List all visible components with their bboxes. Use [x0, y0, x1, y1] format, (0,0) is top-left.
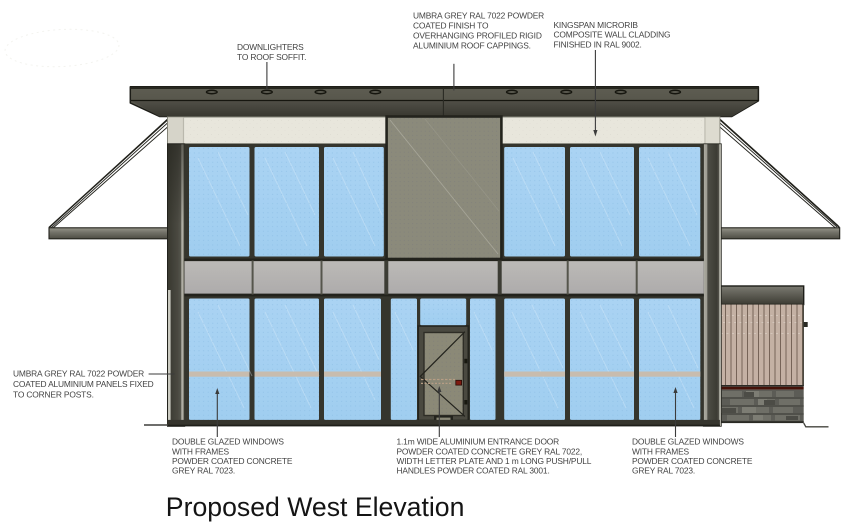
svg-text:Proposed West Elevation: Proposed West Elevation	[166, 492, 465, 522]
svg-text:OVERHANGING PROFILED RIGID: OVERHANGING PROFILED RIGID	[413, 31, 542, 41]
svg-text:TO CORNER POSTS.: TO CORNER POSTS.	[13, 389, 94, 399]
svg-text:UMBRA GREY RAL 7022 POWDER: UMBRA GREY RAL 7022 POWDER	[13, 368, 144, 378]
svg-text:WITH FRAMES: WITH FRAMES	[172, 446, 230, 456]
svg-text:HANDLES POWDER COATED RAL 3001: HANDLES POWDER COATED RAL 3001.	[397, 466, 550, 476]
svg-text:WIDTH LETTER PLATE AND 1 m LON: WIDTH LETTER PLATE AND 1 m LONG PUSH/PUL…	[397, 456, 592, 466]
svg-text:POWDER COATED CONCRETE: POWDER COATED CONCRETE	[632, 456, 753, 466]
svg-text:GREY RAL 7023.: GREY RAL 7023.	[172, 466, 235, 476]
svg-text:FINISHED IN RAL 9002.: FINISHED IN RAL 9002.	[554, 39, 642, 49]
svg-text:1.1m WIDE ALUMINIUM ENTRANCE D: 1.1m WIDE ALUMINIUM ENTRANCE DOOR	[397, 437, 560, 447]
svg-text:WITH FRAMES: WITH FRAMES	[632, 446, 690, 456]
svg-text:UMBRA GREY RAL 7022 POWDER: UMBRA GREY RAL 7022 POWDER	[413, 11, 544, 21]
svg-text:KINGSPAN MICRORIB: KINGSPAN MICRORIB	[554, 20, 639, 30]
svg-text:POWDER COATED CONCRETE: POWDER COATED CONCRETE	[172, 456, 293, 466]
svg-text:ALUMINIUM ROOF CAPPINGS.: ALUMINIUM ROOF CAPPINGS.	[413, 41, 531, 51]
svg-text:GREY RAL 7023.: GREY RAL 7023.	[632, 466, 695, 476]
svg-text:COMPOSITE WALL CLADDING: COMPOSITE WALL CLADDING	[554, 30, 671, 40]
svg-text:TO ROOF SOFFIT.: TO ROOF SOFFIT.	[237, 52, 306, 62]
svg-text:COATED FINISH TO: COATED FINISH TO	[413, 21, 489, 31]
svg-text:COATED ALUMINIUM PANELS FIXED: COATED ALUMINIUM PANELS FIXED	[13, 379, 154, 389]
svg-text:DOUBLE GLAZED WINDOWS: DOUBLE GLAZED WINDOWS	[172, 437, 284, 447]
svg-text:DOWNLIGHTERS: DOWNLIGHTERS	[237, 42, 304, 52]
svg-text:DOUBLE GLAZED WINDOWS: DOUBLE GLAZED WINDOWS	[632, 437, 744, 447]
svg-text:POWDER COATED CONCRETE GREY RA: POWDER COATED CONCRETE GREY RAL 7022,	[397, 446, 583, 456]
